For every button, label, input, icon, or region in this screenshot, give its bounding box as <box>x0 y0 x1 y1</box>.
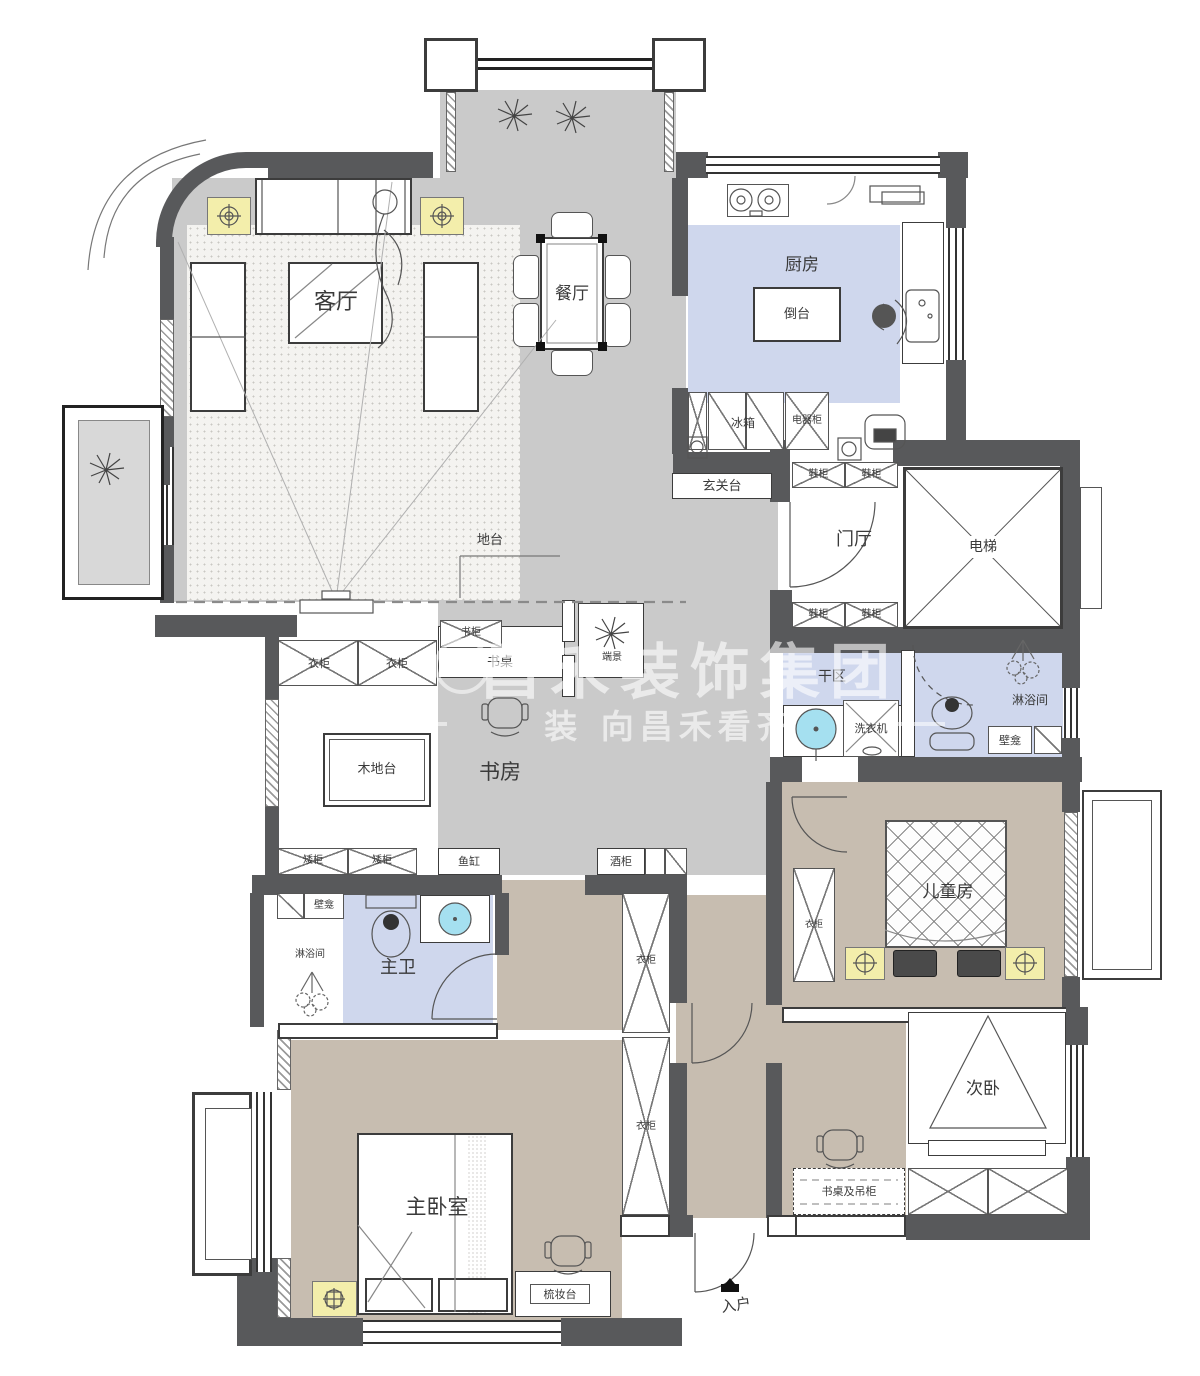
wall <box>676 152 708 178</box>
master-bottom-window <box>363 1320 561 1344</box>
label-dry-area: 干区 <box>806 666 858 688</box>
elevator-bay <box>1080 487 1102 609</box>
room-label-kitchen: 厨房 <box>772 252 832 278</box>
wall <box>1062 977 1080 1007</box>
wall <box>1062 782 1080 812</box>
wall <box>268 152 433 178</box>
label-shower2: 淋浴间 <box>1000 692 1060 708</box>
wall <box>265 637 279 699</box>
master-nightstand-lamp <box>312 1281 357 1317</box>
room-label-study: 书房 <box>462 756 538 788</box>
master-left-window <box>256 1092 272 1272</box>
side-table-lamp <box>420 197 464 235</box>
kids-right-window <box>1064 812 1078 977</box>
living-left-window <box>160 319 174 417</box>
wine-side-box <box>645 848 665 875</box>
wall <box>155 615 297 637</box>
bed2-right-window <box>1070 1045 1084 1157</box>
master-left-window-hatch <box>277 1258 291 1318</box>
sofa-top <box>255 178 412 235</box>
kitchen-top-window <box>706 156 940 174</box>
label-appliance: 电器柜 <box>785 412 829 430</box>
wall <box>946 178 966 228</box>
master-walk-floor <box>497 880 622 1030</box>
wall <box>237 1318 363 1346</box>
balcony-left-floor2 <box>78 420 150 585</box>
tatami-left-window <box>265 699 279 807</box>
dining-chair <box>605 303 631 347</box>
label-fish-tank: 鱼缸 <box>440 851 498 871</box>
wall <box>265 807 279 877</box>
wall-stub <box>562 655 575 697</box>
label-desk-hanging: 书桌及吊柜 <box>798 1182 900 1200</box>
balcony-glazing <box>478 58 652 70</box>
wall <box>672 388 688 454</box>
kids-nightstand-lamp <box>845 947 885 980</box>
balcony-rail <box>446 92 456 172</box>
bed2-footboard <box>928 1140 1046 1156</box>
shower-door-box <box>277 893 304 919</box>
wall <box>938 152 968 178</box>
wall <box>250 893 264 1027</box>
wall <box>766 782 782 1005</box>
wine-side-door <box>665 848 687 875</box>
label-shoe: 鞋柜 <box>792 465 845 485</box>
label-wardrobe: 衣柜 <box>362 654 432 672</box>
room-label-dining: 餐厅 <box>546 282 598 306</box>
top-column-left <box>424 38 478 92</box>
wall-white <box>620 1215 670 1237</box>
wall <box>585 875 687 895</box>
wall-white <box>767 1215 797 1237</box>
wall <box>672 178 688 296</box>
wall <box>893 440 1080 466</box>
sofa-left <box>190 262 246 412</box>
top-column-right <box>652 38 706 92</box>
label-wood-platform: 木地台 <box>329 758 425 780</box>
label-niche2: 壁龛 <box>988 730 1032 750</box>
label-low-cabinet: 矮柜 <box>350 852 414 870</box>
watermark-dash <box>890 722 945 726</box>
wall <box>495 893 509 955</box>
wall-stub <box>562 600 575 642</box>
wall <box>858 757 1082 782</box>
wall <box>670 1215 693 1237</box>
room-label-kids: 儿童房 <box>906 880 990 904</box>
bath-bottom-partition <box>278 1023 498 1039</box>
label-wardrobe: 衣柜 <box>284 654 354 672</box>
sink-counter <box>902 222 944 364</box>
label-dresser: 梳妆台 <box>530 1284 590 1304</box>
kids-nightstand-lamp <box>1005 947 1045 980</box>
room-label-bed2: 次卧 <box>952 1076 1014 1102</box>
label-end-view: 端景 <box>590 650 634 666</box>
label-entry-console: 玄关台 <box>672 475 772 497</box>
label-shoe: 鞋柜 <box>845 605 898 625</box>
wall <box>906 1215 1086 1240</box>
master-headboard <box>365 1278 433 1312</box>
wall <box>1060 466 1080 640</box>
bath2-right-window <box>1064 688 1078 738</box>
wall <box>770 627 1080 653</box>
label-bookcase: 书柜 <box>442 623 500 643</box>
wall <box>670 893 687 1003</box>
side-table-lamp <box>207 197 251 235</box>
label-desk: 书桌 <box>474 652 526 672</box>
wall <box>561 1318 682 1346</box>
wardrobe-box <box>908 1168 988 1215</box>
wall <box>160 237 174 319</box>
dining-chair <box>551 212 593 238</box>
room-label-elevator: 电梯 <box>956 536 1010 558</box>
label-niche-master: 壁龛 <box>304 896 344 916</box>
bath-sink-counter <box>420 895 490 943</box>
room-label-living: 客厅 <box>300 288 372 318</box>
label-wine-cabinet: 酒柜 <box>598 851 644 871</box>
label-wardrobe: 衣柜 <box>624 952 668 970</box>
dining-chair <box>513 255 539 299</box>
wardrobe-box <box>988 1168 1068 1215</box>
label-fridge: 冰箱 <box>702 414 784 432</box>
label-wardrobe: 衣柜 <box>624 1118 668 1136</box>
stove <box>727 184 789 217</box>
watermark-dash <box>392 722 447 726</box>
dining-chair <box>605 255 631 299</box>
bath2-partition <box>901 650 915 757</box>
end-view-box <box>578 603 644 678</box>
floor-plan: 客厅 餐厅 厨房 倒台 冰箱 电器柜 玄关台 门厅 电梯 鞋柜 鞋柜 鞋柜 鞋柜… <box>0 0 1200 1376</box>
wall <box>670 1063 687 1218</box>
kitchen-right-window <box>948 228 964 360</box>
label-low-cabinet: 矮柜 <box>280 852 346 870</box>
wall <box>770 757 802 782</box>
wall <box>766 1063 782 1218</box>
master-headboard <box>438 1278 508 1312</box>
bath2-corner-box <box>1034 726 1062 754</box>
balcony-rail <box>664 92 674 172</box>
dining-chair <box>513 303 539 347</box>
wall <box>1062 653 1080 688</box>
balcony-top-floor <box>440 90 676 180</box>
sofa-right <box>423 262 479 412</box>
label-entrance: 入户 <box>709 1290 764 1319</box>
room-label-master-bath: 主卫 <box>370 954 426 982</box>
dining-chair <box>551 350 593 376</box>
master-bay-inner <box>205 1108 252 1260</box>
label-shower-master: 淋浴间 <box>280 948 340 962</box>
kids-pillow <box>957 950 1001 977</box>
label-island: 倒台 <box>768 303 826 325</box>
kids-pillow <box>893 950 937 977</box>
kids-bay-inner <box>1092 800 1152 970</box>
room-label-master-bedroom: 主卧室 <box>378 1192 496 1222</box>
room-label-foyer: 门厅 <box>824 526 884 554</box>
wall <box>1066 1007 1088 1045</box>
label-shoe: 鞋柜 <box>845 465 898 485</box>
master-left-window-hatch <box>277 1030 291 1090</box>
label-platform: 地台 <box>466 530 514 550</box>
wall <box>252 875 502 895</box>
label-shoe: 鞋柜 <box>792 605 845 625</box>
label-wardrobe: 衣柜 <box>794 917 834 933</box>
